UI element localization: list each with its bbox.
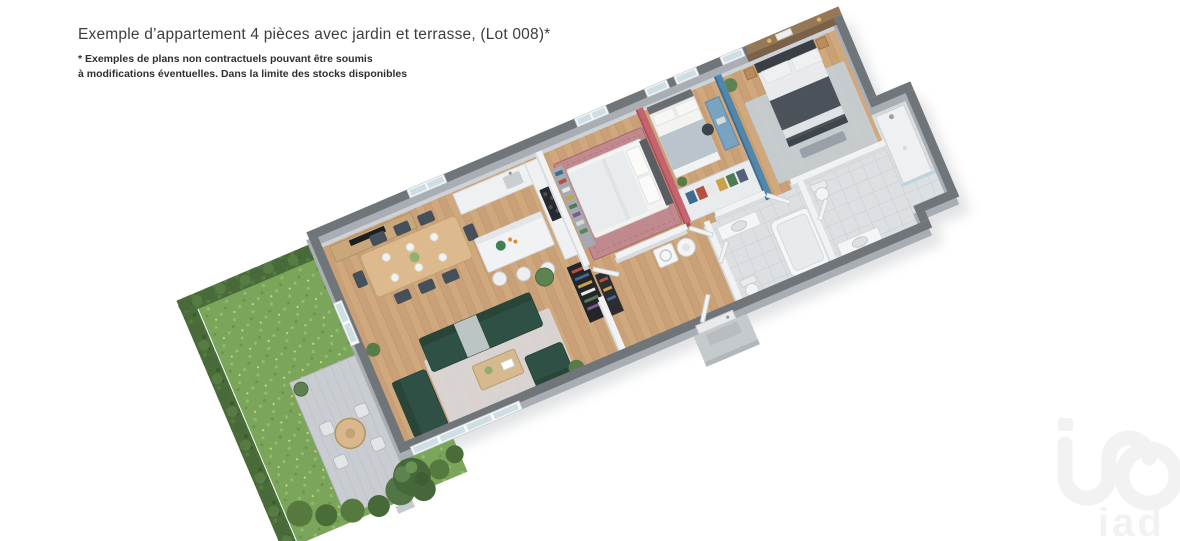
disclaimer-line-2: à modifications éventuelles. Dans la lim… xyxy=(78,67,550,82)
marketing-image: Exemple d’appartement 4 pièces avec jard… xyxy=(0,0,1180,541)
caption-block: Exemple d’appartement 4 pièces avec jard… xyxy=(78,26,550,82)
page-title: Exemple d’appartement 4 pièces avec jard… xyxy=(78,26,550,44)
iad-watermark: iad xyxy=(1058,418,1176,541)
iad-logo-text: iad xyxy=(1098,501,1165,541)
disclaimer-line-1: * Exemples de plans non contractuels pou… xyxy=(78,52,550,67)
iad-logo-dot xyxy=(1058,418,1073,431)
disclaimer: * Exemples de plans non contractuels pou… xyxy=(78,52,550,82)
iad-logo-icon xyxy=(1065,438,1176,503)
